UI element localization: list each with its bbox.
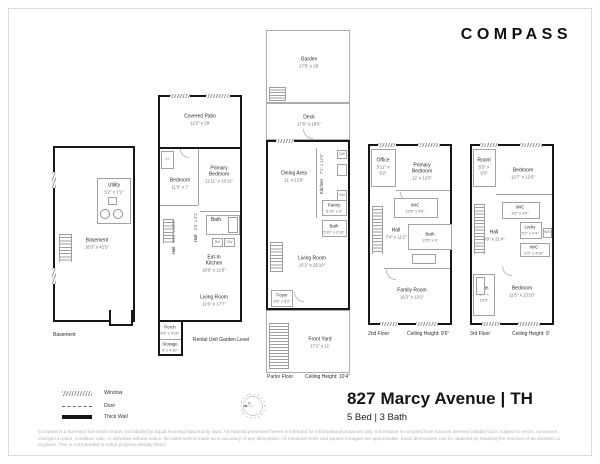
bathtub-icon (228, 217, 238, 233)
room-label-primary-bedroom: Primary Bedroom 12' x 12'5" (403, 163, 441, 180)
room-label-living-room: Living Room 15'2" x 25'10" (298, 256, 326, 268)
door-arc-icon (386, 270, 396, 280)
disclaimer-text: Compass is a licensed real estate broker… (38, 429, 564, 449)
svg-text:N: N (248, 402, 251, 406)
compass-rose-icon: N (239, 392, 267, 420)
room-label-hall: Hall 9'9" x 21'4" (483, 230, 505, 242)
room-label-wic: WIC 10'5" x 5'6" (405, 202, 424, 214)
floor-label-2nd: 2nd Floor (368, 331, 389, 337)
window-icon (380, 322, 398, 326)
deck-outline: Deck 17'6" x 18'5" (266, 103, 350, 140)
room-label-room: Room 5'5" x 9'3" (475, 159, 493, 176)
room-label-bedroom: Bedroom 11'6" x 7' (165, 178, 195, 190)
bathtub-icon (412, 254, 436, 264)
room-label-utility: Utility 5'2" x 7'1" (99, 183, 129, 195)
window-swatch-icon (62, 391, 92, 396)
partition-wall (160, 339, 181, 340)
ceiling-height-2nd: Ceiling Height: 9'6" (407, 331, 449, 337)
legend-item-thick-wall: Thick Wall (62, 414, 128, 420)
window-icon (378, 143, 396, 147)
dishwasher-icon: DW (337, 150, 347, 159)
window-icon (52, 268, 56, 284)
front-yard-outline: Front Yard 17'2" x 11' (266, 310, 350, 373)
stairs-icon (269, 87, 286, 101)
partition-wall (200, 211, 240, 212)
window-icon (482, 322, 500, 326)
room-label-front-yard: Front Yard 17'2" x 11' (308, 337, 331, 349)
stoop-stairs-icon (269, 323, 289, 369)
beds-baths-subtitle: 5 Bed | 3 Bath (347, 412, 533, 423)
floor-label-parlor: Parlor Floor (267, 374, 293, 380)
floor-label-garden-level: Rental Unit Garden Level (193, 337, 249, 343)
window-icon (416, 322, 438, 326)
compass-logo: COMPASS (461, 26, 572, 44)
room-label-bath: Bath (211, 218, 221, 224)
floorplan-2nd-floor: Office 5'11" x 9'2" Primary Bedroom 12' … (368, 144, 452, 325)
room-label-eat-in-kitchen: Eat-In Kitchen 18'6" x 11'6" (199, 255, 229, 272)
dryer-icon (113, 209, 123, 219)
floorplan-3rd-floor: Room 5'5" x 9'3" Bedroom 12'7" x 12'5" W… (470, 144, 554, 325)
ceiling-height-3rd: Ceiling Height: 9' (512, 331, 550, 337)
door-arc-icon (502, 266, 512, 276)
room-label-bath: Bath 5'10" x 3'10" (323, 223, 344, 235)
room-label-family-room: Family Room 16'2" x 13'2" (389, 288, 435, 300)
window-icon (52, 172, 56, 188)
window-icon (276, 139, 294, 143)
room-label-bedroom-top: Bedroom 12'7" x 12'5" (504, 168, 542, 180)
door-arc-icon (303, 129, 313, 139)
window-icon (518, 322, 540, 326)
stairs-icon (474, 204, 485, 254)
door-arc-icon (180, 149, 189, 158)
room-label-hall: Hall 7'4" x 11'2" (384, 228, 408, 240)
window-icon (418, 143, 440, 147)
floorplan-garden-level: Covered Patio 12'2" x 29' Cl. Bedroom 11… (158, 95, 242, 322)
window-icon (520, 143, 542, 147)
stove-icon (337, 164, 347, 176)
stairs-icon (59, 234, 72, 262)
window-icon (206, 94, 230, 98)
washer-icon (100, 209, 110, 219)
bathtub-icon (476, 277, 485, 295)
room-label-storage: Storage 5' x 4'10" (160, 341, 180, 353)
dishwasher-icon: DW (224, 238, 235, 247)
room-label-kitchen: Kitchen 7'1" x 12'6" (313, 154, 331, 194)
washer-dryer-icon: W/D (543, 228, 552, 238)
porch-storage-annex: Porch 4'4" x 4'10" Storage 5' x 4'10" (158, 322, 183, 356)
room-label-basement: Basement 18'3" x 41'5" (85, 238, 109, 250)
door-swatch-icon (62, 406, 92, 407)
room-label-foyer: Foyer 4'5" x 5'2" (273, 292, 290, 304)
floorplan-parlor: Dining Area 11' x 12'8" Kitchen 7'1" x 1… (266, 140, 350, 310)
room-label-bath: Bath 10'5" x 9' (422, 231, 438, 243)
refrigerator-icon: Ref (337, 190, 347, 201)
partition-wall (198, 149, 199, 205)
room-label-laundry: Lndry 5'2" x 4'4" (521, 224, 538, 236)
address-title: 827 Marcy Avenue | TH (347, 389, 533, 409)
room-label-covered-patio: Covered Patio 12'2" x 29' (183, 114, 217, 126)
partition-wall (496, 194, 552, 195)
floorplan-basement: Utility 5'2" x 7'1" Basement 18'3" x 41'… (53, 146, 135, 322)
garden-outline: Garden 17'5" x 28' (266, 30, 350, 103)
wall-step (109, 310, 133, 326)
legend-item-door: Door (62, 403, 115, 409)
stairs-icon (372, 206, 383, 254)
title-block: 827 Marcy Avenue | TH 5 Bed | 3 Bath (347, 389, 533, 423)
closet-label: Cl. (163, 155, 172, 164)
refrigerator-icon: Ref (212, 238, 223, 247)
thick-wall (160, 147, 240, 149)
room-label-hall-2: Hall 5'9" x 3'1" (187, 212, 205, 243)
door-arc-icon (294, 292, 304, 302)
room-label-office: Office 5'11" x 9'2" (373, 159, 393, 176)
room-label-porch: Porch 4'4" x 4'10" (160, 324, 180, 336)
partition-wall (160, 205, 198, 206)
room-label-hall-1: Hall 5'11" x 10'4" (165, 219, 183, 254)
window-icon (480, 143, 498, 147)
room-label-dining-area: Dining Area 11' x 12'8" (281, 171, 307, 183)
room-label-wic-2: WIC 6'2" x 4'10" (524, 244, 543, 256)
room-label-living-room: Living Room 11'6" x 17'7" (200, 295, 228, 307)
room-label-pantry: Pantry 5'10" x 4' (326, 202, 342, 214)
floor-label-3rd: 3rd Floor (470, 331, 490, 337)
window-icon (170, 94, 190, 98)
partition-wall (396, 190, 450, 191)
legend-item-window: Window (62, 390, 122, 396)
ceiling-height-parlor: Ceiling Height: 10'4" (305, 374, 350, 380)
room-label-bedroom-bottom: Bedroom 11'5" x 13'10" (501, 286, 543, 298)
floorplan-sheet: COMPASS Utility 5'2" x 7'1" Basement 18'… (0, 0, 600, 464)
room-label-garden: Garden 17'5" x 28' (299, 57, 319, 69)
room-label-deck: Deck 17'6" x 18'5" (297, 115, 321, 127)
floor-label-basement: Basement (53, 332, 76, 338)
partition-wall (384, 268, 450, 269)
sink-icon (108, 197, 117, 205)
room-label-primary-bedroom: Primary Bedroom 11'11" x 10'11" (201, 166, 237, 183)
room-label-wic-1: WIC 8'2" x 4'5" (511, 204, 528, 216)
thick-wall-swatch-icon (62, 415, 92, 419)
stairs-icon (270, 242, 283, 272)
